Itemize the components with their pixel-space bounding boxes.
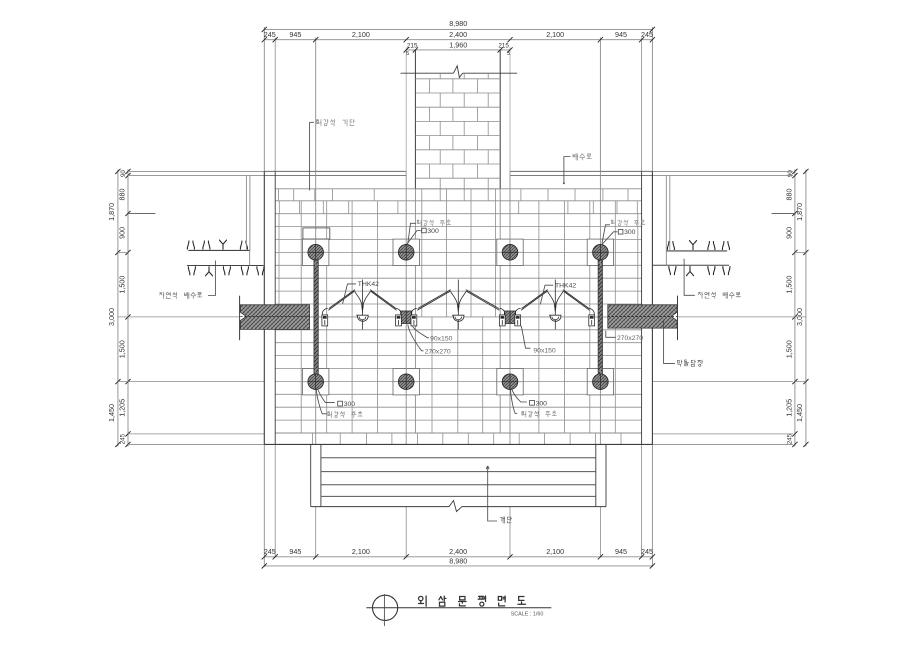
svg-text:300: 300 (624, 229, 636, 236)
svg-text:1,870: 1,870 (795, 203, 804, 221)
svg-text:245: 245 (264, 30, 276, 39)
svg-text:SCALE : 1/60: SCALE : 1/60 (511, 611, 544, 617)
svg-text:1,500: 1,500 (784, 276, 793, 294)
svg-text:300: 300 (536, 400, 548, 407)
svg-text:1,500: 1,500 (784, 340, 793, 358)
svg-text:1,500: 1,500 (118, 340, 127, 358)
svg-text:THK42: THK42 (555, 282, 576, 289)
svg-text:245: 245 (786, 433, 793, 444)
svg-text:300: 300 (427, 228, 439, 235)
svg-text:880: 880 (118, 189, 127, 201)
svg-text:880: 880 (784, 189, 793, 201)
svg-text:5: 5 (507, 51, 510, 57)
svg-text:900: 900 (118, 227, 127, 239)
svg-text:5: 5 (406, 51, 409, 57)
svg-text:270x270: 270x270 (617, 335, 643, 342)
svg-text:300: 300 (344, 401, 356, 408)
svg-text:245: 245 (264, 547, 276, 556)
svg-text:90x150: 90x150 (533, 347, 556, 354)
svg-text:245: 245 (120, 433, 127, 444)
svg-text:1,205: 1,205 (784, 399, 793, 417)
svg-text:945: 945 (615, 547, 627, 556)
svg-text:2,100: 2,100 (352, 30, 370, 39)
svg-text:900: 900 (784, 227, 793, 239)
svg-text:945: 945 (289, 30, 301, 39)
svg-text:8,980: 8,980 (449, 19, 467, 28)
svg-text:245: 245 (641, 547, 653, 556)
svg-text:245: 245 (641, 30, 653, 39)
svg-text:1,500: 1,500 (118, 276, 127, 294)
svg-text:90: 90 (120, 170, 127, 177)
svg-text:1,450: 1,450 (795, 404, 804, 422)
svg-text:2,100: 2,100 (546, 547, 564, 556)
svg-text:270x270: 270x270 (425, 349, 451, 356)
svg-text:945: 945 (615, 30, 627, 39)
svg-text:90x150: 90x150 (430, 335, 453, 342)
svg-text:945: 945 (289, 547, 301, 556)
svg-text:8,980: 8,980 (449, 556, 467, 565)
svg-text:3,000: 3,000 (107, 308, 116, 326)
svg-text:THK42: THK42 (358, 281, 379, 288)
svg-text:215: 215 (407, 43, 418, 50)
svg-text:1,960: 1,960 (449, 40, 467, 49)
svg-text:2,100: 2,100 (546, 30, 564, 39)
svg-text:2,400: 2,400 (449, 547, 467, 556)
svg-text:1,450: 1,450 (107, 404, 116, 422)
svg-text:2,400: 2,400 (449, 30, 467, 39)
svg-text:1,870: 1,870 (107, 203, 116, 221)
svg-text:2,100: 2,100 (352, 547, 370, 556)
svg-text:1,205: 1,205 (118, 399, 127, 417)
svg-text:215: 215 (498, 43, 509, 50)
